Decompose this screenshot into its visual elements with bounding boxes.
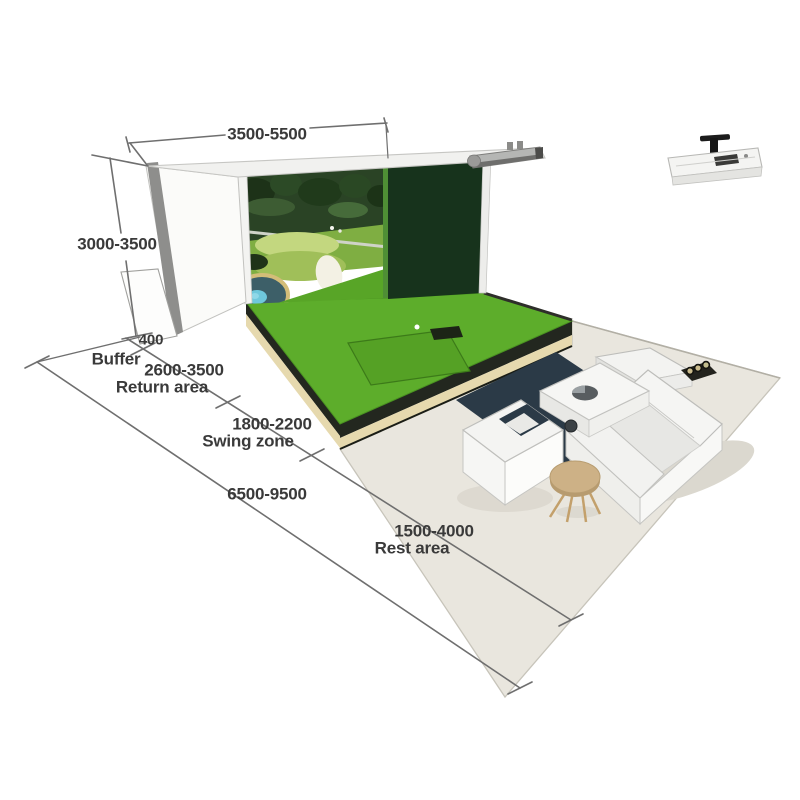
- rest-zone-label: Rest area: [375, 540, 450, 557]
- floor-ornament: [565, 420, 577, 432]
- stool-top: [550, 461, 600, 493]
- dark-green-wall: [388, 156, 490, 299]
- sensor-knob: [507, 142, 513, 150]
- projector: [668, 134, 762, 185]
- impact-screen: [235, 162, 393, 315]
- buffer-range-label: 400: [139, 333, 163, 348]
- room-layout-diagram: 3500-5500 3000-3500 400 Buffer 2600-3500…: [0, 0, 800, 800]
- height-dimension-label: 3000-3500: [77, 236, 157, 253]
- diagram-scene: [0, 0, 800, 800]
- rest-range-label: 1500-4000: [394, 523, 474, 540]
- buffer-zone-label: Buffer: [92, 351, 141, 368]
- sensor-knob: [517, 141, 523, 149]
- return-zone-label: Return area: [116, 379, 208, 396]
- return-range-label: 2600-3500: [144, 362, 224, 379]
- swing-zone-label: Swing zone: [202, 433, 294, 450]
- sensor-clamp: [468, 155, 481, 167]
- ceiling-sensor: [468, 141, 544, 168]
- swing-range-label: 1800-2200: [232, 416, 312, 433]
- width-dimension-label: 3500-5500: [227, 126, 307, 143]
- sensor-end-cap: [535, 147, 543, 159]
- golf-ball: [415, 325, 420, 330]
- total-depth-label: 6500-9500: [227, 486, 307, 503]
- stool: [550, 461, 600, 522]
